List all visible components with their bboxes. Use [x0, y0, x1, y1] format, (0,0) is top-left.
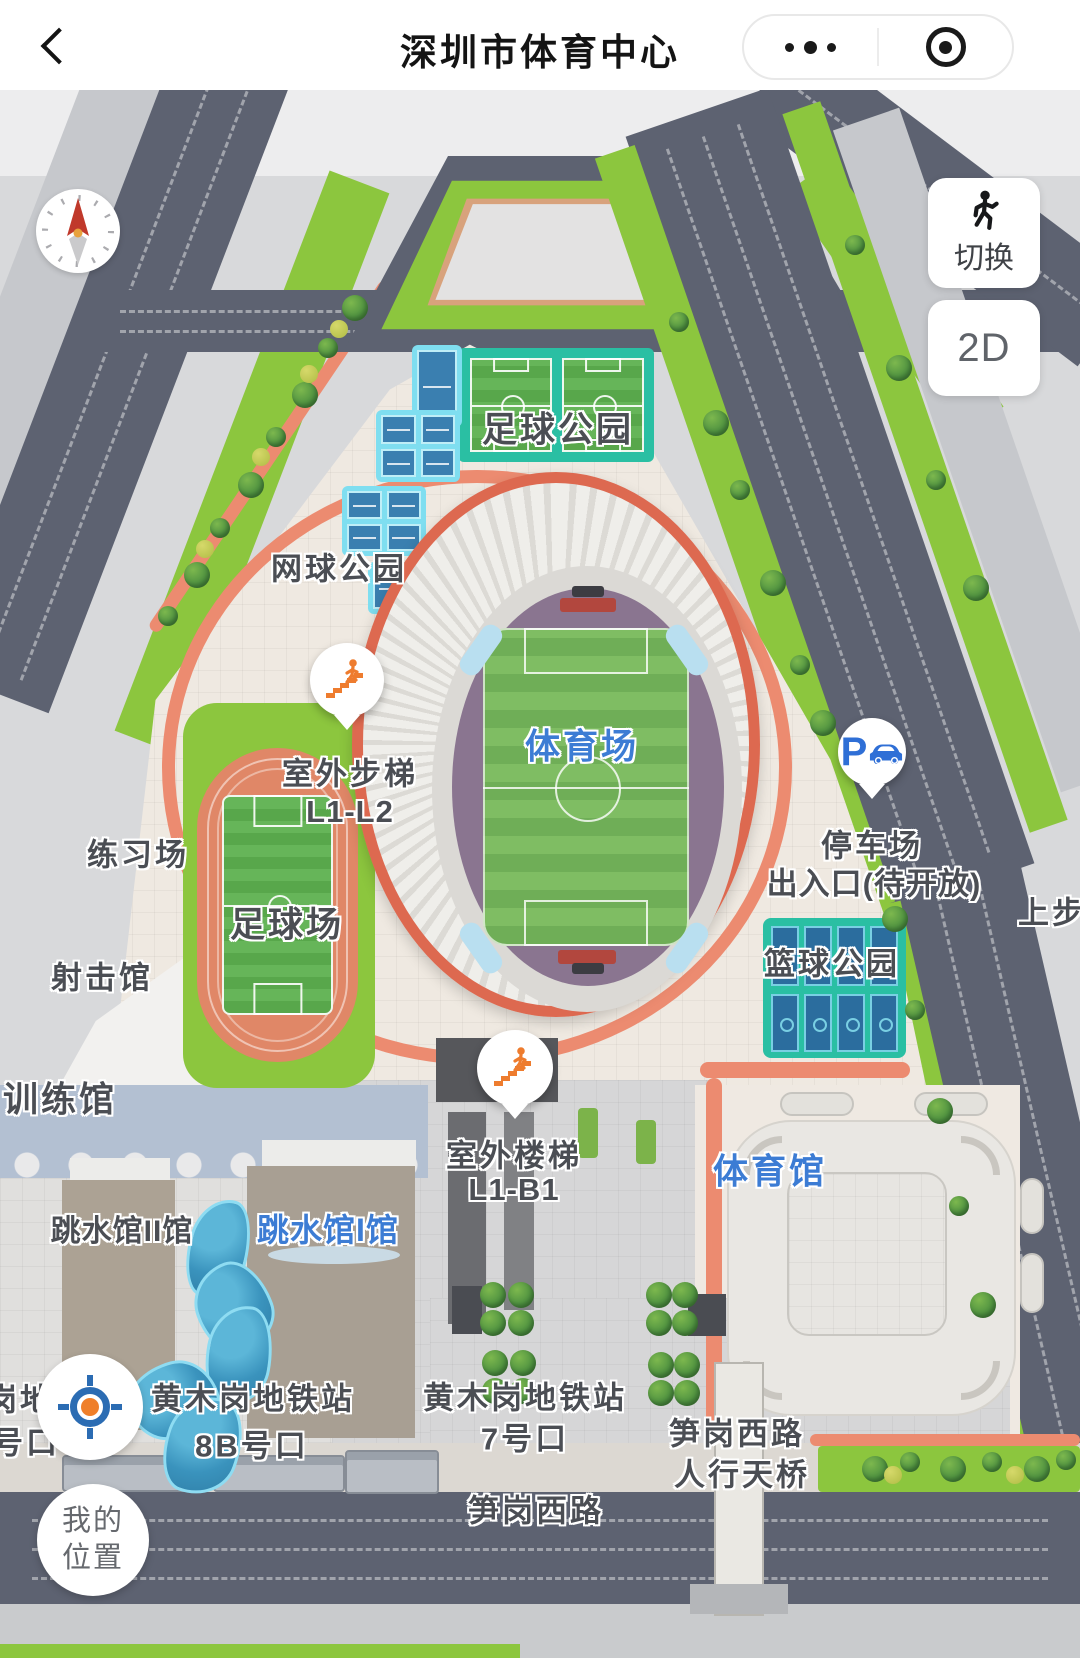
view-mode-2d-label: 2D: [957, 326, 1010, 371]
label-road-shangbu: 上步路: [1018, 888, 1080, 933]
mini-program-capsule: [742, 14, 1014, 80]
compass-north-icon: [36, 189, 120, 273]
label-diving-hall-i[interactable]: 跳水馆I馆: [257, 1205, 399, 1251]
label-footbridge-road: 笋岗西路: [669, 1409, 805, 1454]
stadium-pitch: [483, 628, 689, 946]
label-outdoor-stairs[interactable]: 室外楼梯: [446, 1131, 582, 1176]
marker-parking[interactable]: P: [838, 718, 906, 786]
label-footbridge: 人行天桥: [674, 1450, 810, 1495]
stadium-gate: [572, 963, 604, 974]
gymnasium-vent: [780, 1092, 854, 1116]
label-metro-8b-exit[interactable]: 8B号口: [195, 1421, 309, 1466]
stairs-person-icon: [493, 1046, 537, 1090]
bridge-landing: [690, 1584, 788, 1614]
app-window: 足球公园 网球公园 体育场 室外步梯 L1-L2 练习场 足球场 射击馆 训练馆…: [0, 0, 1080, 1658]
walking-person-icon: [963, 189, 1005, 231]
label-diving-hall-ii[interactable]: 跳水馆II馆: [51, 1206, 194, 1250]
stairs-person-icon: [325, 658, 369, 702]
label-practice-field[interactable]: 练习场: [87, 830, 189, 875]
stadium-gate: [572, 586, 604, 597]
path-east: [700, 1062, 910, 1078]
navigation-bar: 深圳市体育中心: [0, 0, 1080, 90]
label-tennis-park[interactable]: 网球公园: [271, 544, 407, 589]
metro-structure: [452, 1286, 482, 1334]
label-outdoor-stairs-floors[interactable]: L1-B1: [468, 1172, 559, 1208]
stadium-gate: [558, 950, 616, 964]
map-canvas[interactable]: 足球公园 网球公园 体育场 室外步梯 L1-L2 练习场 足球场 射击馆 训练馆…: [0, 0, 1080, 1658]
green-south-edge: [0, 1644, 520, 1658]
label-gymnasium[interactable]: 体育馆: [713, 1144, 827, 1195]
label-basketball-park[interactable]: 篮球公园: [764, 939, 900, 984]
label-outdoor-steps-floors[interactable]: L1-L2: [306, 794, 394, 830]
parking-car-icon: [869, 740, 903, 764]
marker-outdoor-steps[interactable]: [310, 643, 384, 717]
label-road-sungang: 笋岗西路: [468, 1486, 604, 1531]
diving-hall-ii-roof: [70, 1158, 170, 1182]
path-southeast: [810, 1434, 1080, 1446]
bus-shelter: [345, 1450, 439, 1494]
parking-p-letter: P: [841, 730, 868, 775]
label-outdoor-steps[interactable]: 室外步梯: [282, 749, 418, 794]
label-football-field[interactable]: 足球场: [230, 897, 344, 948]
gymnasium-vent: [1020, 1253, 1044, 1313]
more-button[interactable]: [744, 16, 877, 78]
my-position-badge[interactable]: 我的 位置: [37, 1484, 149, 1596]
label-metro-7-station[interactable]: 黄木岗地铁站: [423, 1373, 627, 1418]
exit-circle-icon: [926, 27, 966, 67]
my-position-line2: 位置: [62, 1540, 124, 1577]
label-stadium[interactable]: 体育场: [525, 719, 639, 770]
label-metro-7-exit[interactable]: 7号口: [481, 1414, 569, 1459]
stadium-gate: [560, 598, 616, 612]
switch-mode-button[interactable]: 切换: [928, 178, 1040, 288]
marker-outdoor-stairs[interactable]: [477, 1030, 553, 1106]
planter: [636, 1120, 656, 1164]
label-parking-status[interactable]: 出入口(待开放): [767, 859, 982, 904]
gymnasium-vent: [1020, 1178, 1044, 1234]
compass-button[interactable]: [36, 189, 120, 273]
my-location-button[interactable]: [37, 1354, 143, 1460]
label-training-hall[interactable]: 训练馆: [3, 1072, 117, 1123]
my-position-line1: 我的: [62, 1503, 124, 1540]
close-button[interactable]: [879, 16, 1012, 78]
view-mode-2d-button[interactable]: 2D: [928, 300, 1040, 396]
diving-hall-i-roof: [262, 1140, 416, 1167]
label-shooting-hall[interactable]: 射击馆: [51, 953, 153, 998]
location-crosshair-icon: [58, 1375, 122, 1439]
label-football-park[interactable]: 足球公园: [482, 402, 634, 453]
switch-mode-label: 切换: [954, 233, 1014, 277]
tennis-court-group: [376, 410, 460, 482]
label-metro-8b-station[interactable]: 黄木岗地铁站: [151, 1374, 355, 1419]
